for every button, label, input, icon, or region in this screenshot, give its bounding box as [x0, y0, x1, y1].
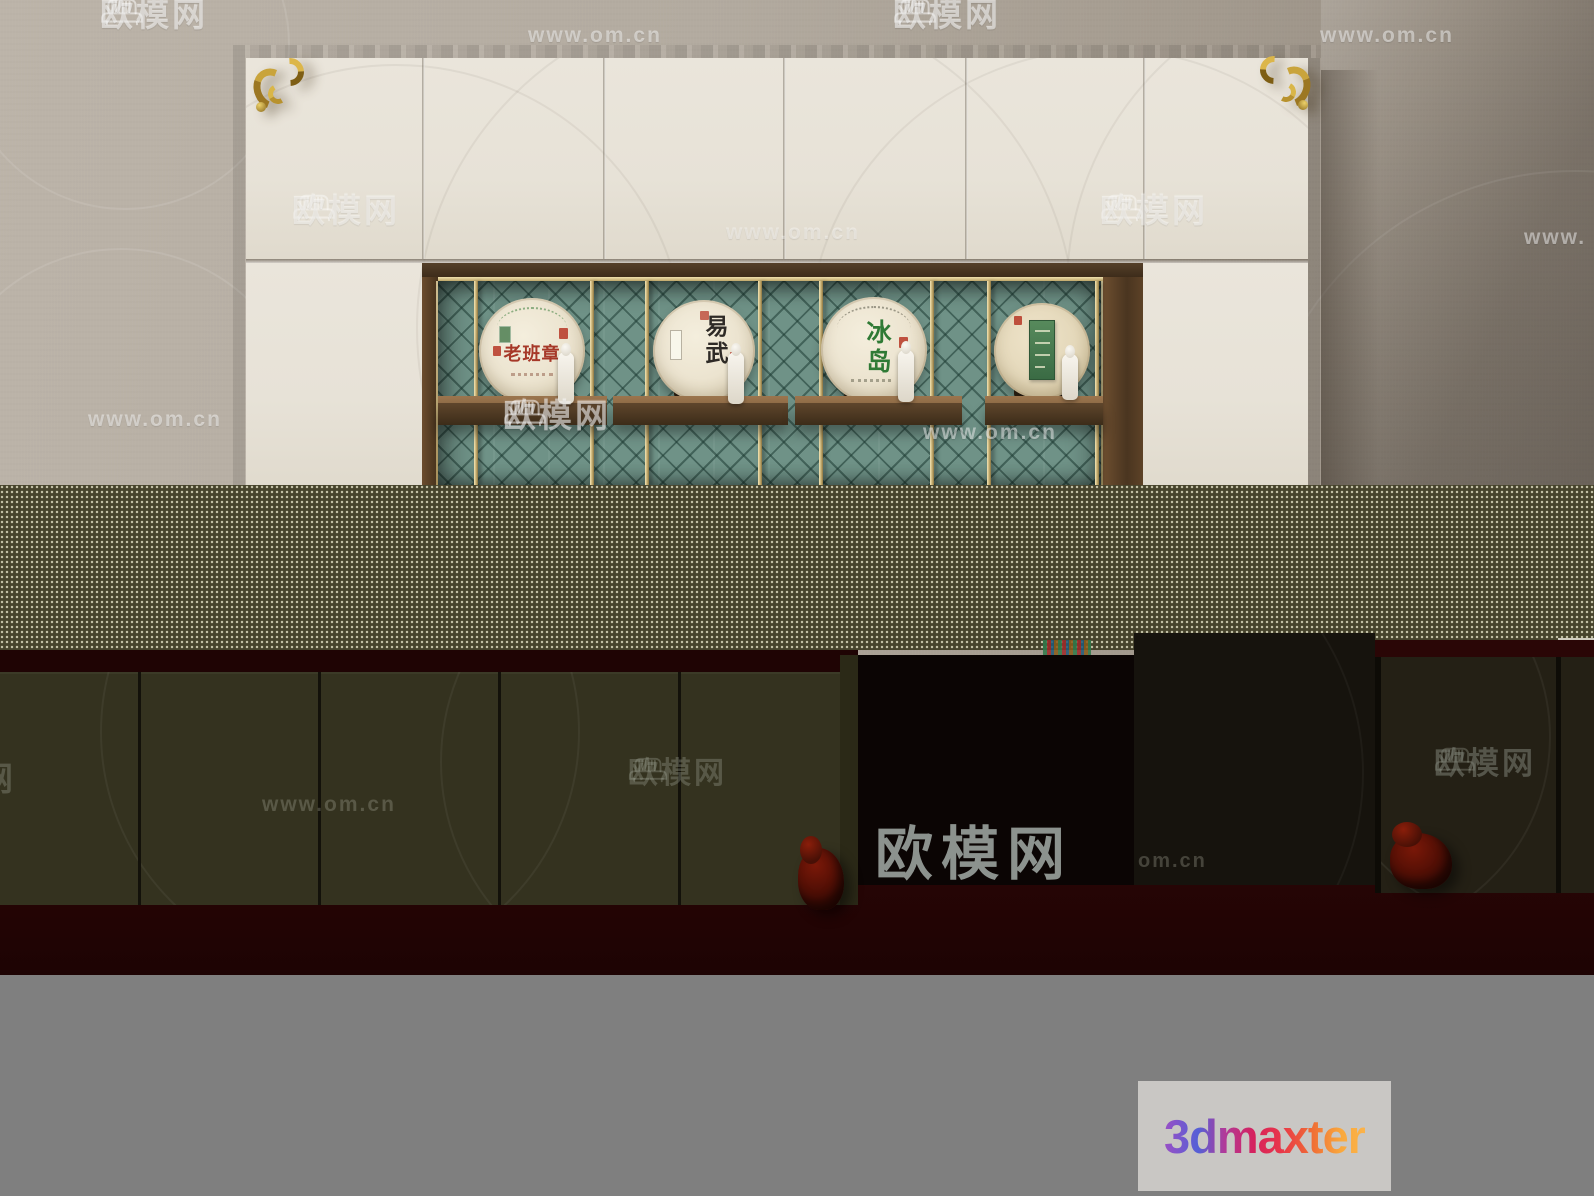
- door-seam: [422, 58, 425, 259]
- watermark-brand-text: 欧模网: [292, 184, 400, 232]
- niche-gold-edge: [436, 281, 438, 485]
- right-panel-seam: [1556, 657, 1561, 893]
- tea-disc-label: 易武: [697, 314, 731, 384]
- logo-3dmaxter: 3dmaxter: [1138, 1081, 1391, 1191]
- logo-3dmaxter-text: 3dmaxter: [1164, 1109, 1365, 1164]
- maroon-top-strip: [0, 650, 858, 672]
- niche-side-right: [1103, 277, 1143, 490]
- dark-wall-arc: [1134, 633, 1375, 885]
- lower-door-seam: [498, 672, 501, 905]
- watermark-url-partial: www.: [1524, 226, 1586, 250]
- watermark-brand-text: 欧模网: [893, 0, 1001, 36]
- glitch-color-fragment: [1043, 640, 1091, 656]
- cabinet-left-stile: [233, 58, 246, 490]
- scene: 欧模网 www.om.cn 欧模网 www.om.cn 欧模网 www.om.c…: [0, 0, 1594, 1196]
- tea-disc-green-plate: [1029, 320, 1055, 380]
- brass-rod: [645, 281, 649, 485]
- watermark-url: www.om.cn: [726, 221, 860, 245]
- white-figurine: [728, 352, 744, 404]
- niche-gold-edge: [1101, 281, 1103, 485]
- watermark-brand-text: 网: [0, 752, 16, 800]
- watermark-brand-text: 欧模网: [1434, 738, 1536, 783]
- watermark-brand-text: 欧模网: [1100, 184, 1208, 232]
- brass-rod: [987, 281, 991, 485]
- brass-rod: [819, 281, 823, 485]
- glitch-dot-band: [0, 485, 1594, 650]
- cabinet-cast-shadow: [1321, 70, 1379, 500]
- lower-door-seam: [138, 672, 141, 905]
- watermark-url-short: om.cn: [1138, 850, 1207, 873]
- niche-top-beam: [422, 263, 1143, 277]
- door-seam: [965, 58, 968, 259]
- watermark-brand-text: 欧模网: [628, 748, 727, 792]
- brass-rod: [758, 281, 762, 485]
- white-figurine: [1062, 354, 1078, 400]
- watermark-url: www.om.cn: [88, 408, 222, 432]
- door-seam: [603, 58, 606, 259]
- white-figurine: [898, 350, 914, 402]
- cabinet-right-stile: [1308, 58, 1321, 490]
- watermark-url: www.om.cn: [923, 421, 1057, 445]
- watermark-url: www.om.cn: [1320, 24, 1454, 48]
- black-glitch-block: 欧模网: [858, 655, 1134, 885]
- watermark-brand-text: 欧模网: [503, 389, 611, 437]
- right-panel-rail: [1375, 640, 1594, 657]
- gold-flourish-ornament-icon: [248, 58, 312, 122]
- lower-divider-strip: [840, 655, 858, 905]
- shelf: [613, 396, 788, 425]
- brass-rod: [930, 281, 934, 485]
- brass-rod: [590, 281, 594, 485]
- brass-rod: [474, 281, 478, 485]
- watermark-brand-text: 欧模网: [100, 0, 208, 36]
- brass-rod: [1095, 281, 1099, 485]
- lower-door-seam: [318, 672, 321, 905]
- watermark-url: www.om.cn: [262, 793, 396, 817]
- cabinet-top-rail: [233, 45, 1321, 58]
- gold-flourish-ornament-icon: [1252, 56, 1316, 120]
- watermark-brand-large: 欧模网: [875, 807, 1073, 891]
